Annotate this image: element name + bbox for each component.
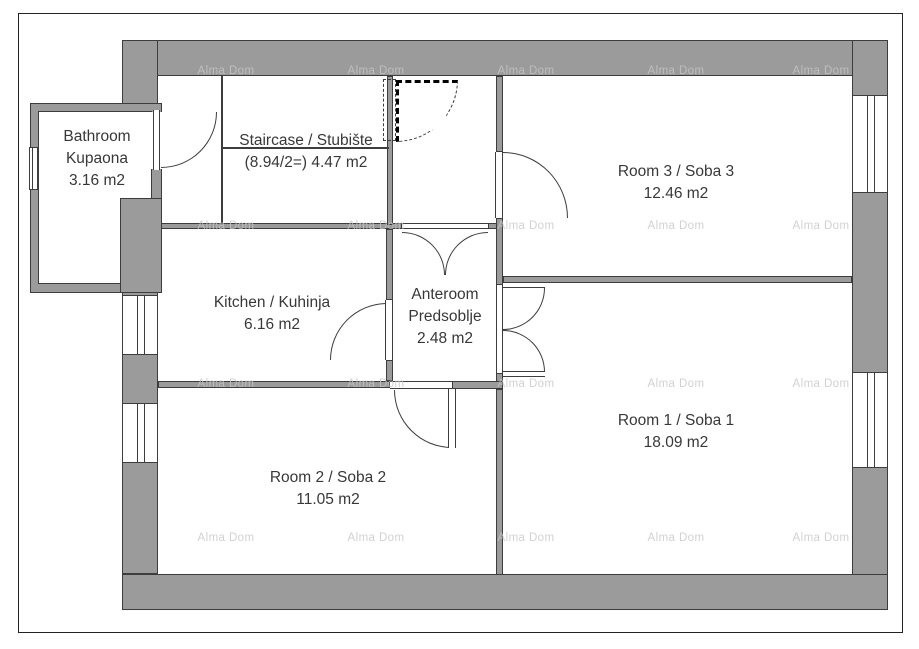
kitchen-window bbox=[122, 295, 158, 355]
room3-label: Room 3 / Soba 3 12.46 m2 bbox=[618, 161, 734, 205]
room1-window bbox=[852, 372, 888, 468]
room2-name: Room 2 / Soba 2 bbox=[270, 467, 386, 489]
room2-area: 11.05 m2 bbox=[270, 489, 386, 511]
staircase-name: Staircase / Stubište bbox=[239, 130, 373, 152]
room3-name: Room 3 / Soba 3 bbox=[618, 161, 734, 183]
watermark: Alma Dom bbox=[348, 378, 405, 390]
watermark: Alma Dom bbox=[198, 532, 255, 544]
entry-door-dashed-leaf bbox=[383, 79, 396, 141]
wall-room3-west-upper bbox=[496, 76, 503, 152]
staircase-area: (8.94/2=) 4.47 m2 bbox=[239, 152, 373, 174]
room3-window bbox=[852, 95, 888, 193]
watermark: Alma Dom bbox=[198, 65, 255, 77]
anteroom-east-door-leaf-top bbox=[503, 282, 545, 288]
room1-area: 18.09 m2 bbox=[618, 432, 734, 454]
room2-door-leaf bbox=[448, 389, 456, 448]
watermark: Alma Dom bbox=[198, 378, 255, 390]
bathroom-wall-block bbox=[120, 198, 162, 293]
watermark: Alma Dom bbox=[648, 532, 705, 544]
watermark: Alma Dom bbox=[793, 65, 850, 77]
room3-area: 12.46 m2 bbox=[618, 183, 734, 205]
anteroom-east-door-opening bbox=[496, 285, 503, 373]
bathroom-window bbox=[29, 147, 39, 190]
watermark: Alma Dom bbox=[648, 65, 705, 77]
watermark: Alma Dom bbox=[498, 220, 555, 232]
anteroom-label: Anteroom Predsoblje 2.48 m2 bbox=[408, 284, 481, 350]
bathroom-door-leaf bbox=[153, 110, 160, 170]
anteroom-name-en: Anteroom bbox=[408, 284, 481, 306]
watermark: Alma Dom bbox=[648, 220, 705, 232]
watermark: Alma Dom bbox=[348, 532, 405, 544]
watermark: Alma Dom bbox=[198, 220, 255, 232]
wall-anteroom-south bbox=[452, 381, 503, 389]
anteroom-east-door-leaf-bottom bbox=[503, 371, 545, 377]
room2-label: Room 2 / Soba 2 11.05 m2 bbox=[270, 467, 386, 511]
bathroom-area: 3.16 m2 bbox=[63, 170, 130, 192]
watermark: Alma Dom bbox=[348, 65, 405, 77]
kitchen-name: Kitchen / Kuhinja bbox=[214, 292, 330, 314]
bathroom-name-hr: Kupaona bbox=[63, 148, 130, 170]
anteroom-area: 2.48 m2 bbox=[408, 328, 481, 350]
bathroom-name-en: Bathroom bbox=[63, 126, 130, 148]
kitchen-door-leaf bbox=[385, 300, 393, 360]
watermark: Alma Dom bbox=[793, 220, 850, 232]
watermark: Alma Dom bbox=[498, 65, 555, 77]
watermark: Alma Dom bbox=[498, 532, 555, 544]
watermark: Alma Dom bbox=[348, 220, 405, 232]
anteroom-name-hr: Predsoblje bbox=[408, 306, 481, 328]
wall-room2-room1-divider bbox=[496, 389, 503, 575]
room2-window bbox=[122, 403, 158, 463]
staircase-label: Staircase / Stubište (8.94/2=) 4.47 m2 bbox=[239, 130, 373, 174]
bathroom-label: Bathroom Kupaona 3.16 m2 bbox=[63, 126, 130, 192]
wall-exterior-bottom bbox=[122, 574, 888, 610]
room3-door-leaf bbox=[495, 152, 503, 218]
anteroom-north-door-opening bbox=[402, 223, 488, 229]
floor-plan-canvas: Bathroom Kupaona 3.16 m2 Staircase / Stu… bbox=[0, 0, 919, 649]
room1-label: Room 1 / Soba 1 18.09 m2 bbox=[618, 410, 734, 454]
watermark: Alma Dom bbox=[648, 378, 705, 390]
watermark: Alma Dom bbox=[793, 532, 850, 544]
kitchen-area: 6.16 m2 bbox=[214, 314, 330, 336]
staircase-boundary-line bbox=[221, 76, 223, 224]
watermark: Alma Dom bbox=[793, 378, 850, 390]
kitchen-label: Kitchen / Kuhinja 6.16 m2 bbox=[214, 292, 330, 336]
watermark: Alma Dom bbox=[498, 378, 555, 390]
wall-room3-room1-divider bbox=[503, 276, 852, 283]
room1-name: Room 1 / Soba 1 bbox=[618, 410, 734, 432]
wall-anteroom-west-upper bbox=[386, 229, 393, 300]
